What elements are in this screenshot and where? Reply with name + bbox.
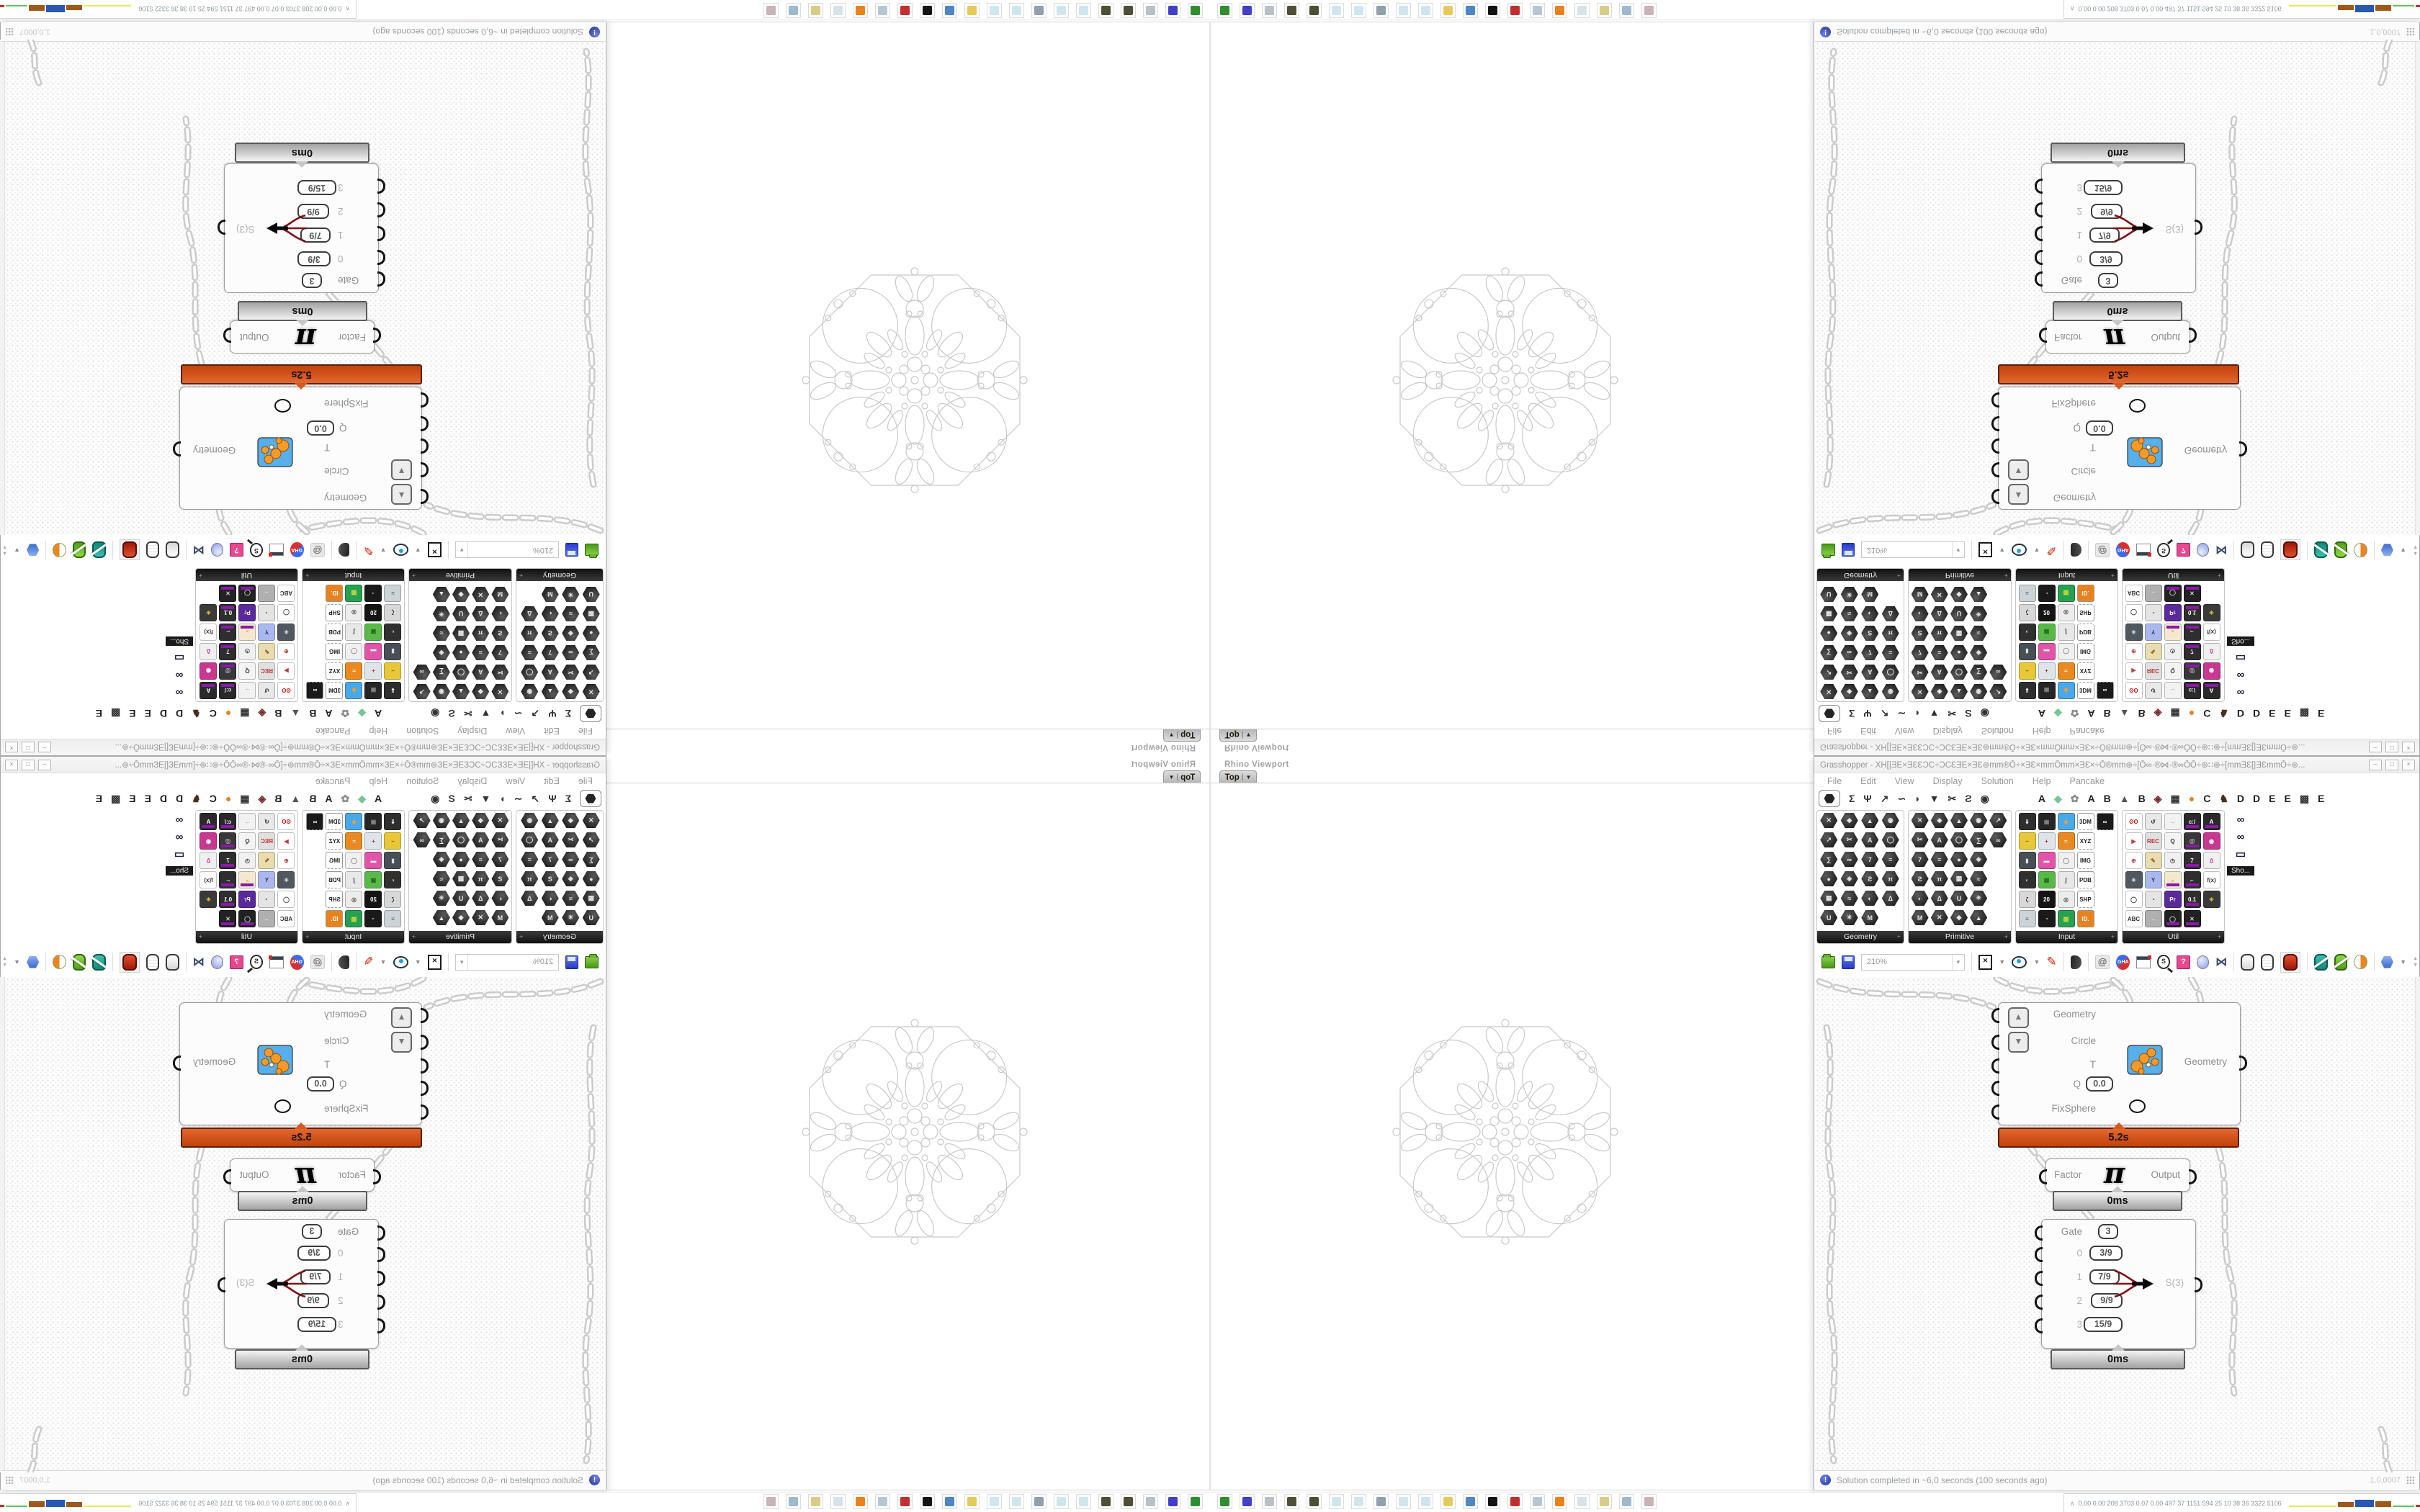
component-icon[interactable]: ◷ xyxy=(239,643,256,660)
component-icon[interactable]: ▶ xyxy=(2125,662,2143,680)
param-hex-icon[interactable]: ✂ xyxy=(1912,665,1929,680)
arrow-down-button[interactable]: ▼ xyxy=(391,459,412,480)
param-hex-icon[interactable]: A xyxy=(1861,832,1878,847)
taskbar-app-button-17[interactable] xyxy=(1597,3,1612,18)
close-button[interactable]: × xyxy=(5,742,18,752)
gate-value-capsule-3[interactable]: 15/9 xyxy=(2084,1317,2123,1332)
component-icon[interactable]: ▮ xyxy=(385,643,402,660)
tab-plugin-6[interactable]: B xyxy=(2138,706,2146,721)
taskbar-app-button-11[interactable] xyxy=(1463,1494,1478,1509)
param-hex-icon[interactable]: ≡ xyxy=(1931,852,1948,867)
component-icon[interactable]: ✕ xyxy=(220,585,237,602)
tab-plugin-1[interactable]: ◆ xyxy=(2054,791,2062,806)
param-hex-icon[interactable]: π xyxy=(1931,626,1948,641)
tab-plugin-8[interactable]: ▦ xyxy=(240,791,249,806)
preview-mode-gray-icon[interactable] xyxy=(166,954,179,971)
component-icon[interactable]: PDB xyxy=(2077,624,2094,641)
tab-plugin-0[interactable]: A xyxy=(375,791,382,806)
param-hex-icon[interactable]: ◆ xyxy=(452,910,470,925)
tab-plugin-2[interactable]: ✿ xyxy=(2071,706,2079,721)
tab-plugin-4[interactable]: B xyxy=(309,706,316,721)
preview-eye-icon[interactable] xyxy=(393,544,408,557)
window-icon[interactable] xyxy=(269,956,283,968)
param-hex-icon[interactable]: 7 xyxy=(1912,852,1929,867)
taskbar-app-button-5[interactable] xyxy=(1329,1494,1344,1509)
param-hex-icon[interactable]: ✕ xyxy=(1931,587,1948,602)
component-icon[interactable]: ∞ xyxy=(2097,682,2114,699)
projector-icon[interactable] xyxy=(2071,544,2082,557)
minimize-button[interactable]: – xyxy=(2369,742,2382,752)
tab-plugin-15[interactable]: E xyxy=(129,706,135,721)
taskbar-app-button-6[interactable] xyxy=(1054,3,1069,18)
taskbar-app-button-6[interactable] xyxy=(1351,1494,1366,1509)
component-icon[interactable]: ≡ xyxy=(2019,585,2036,602)
param-hex-icon[interactable]: ◈ xyxy=(1841,626,1858,641)
taskbar-app-button-15[interactable] xyxy=(853,1494,868,1509)
tab-core-5[interactable]: ▼ xyxy=(1930,706,1940,721)
component-icon[interactable]: ◒ xyxy=(2164,624,2182,641)
param-hex-icon[interactable]: ● xyxy=(452,645,470,660)
menu-item-edit[interactable]: Edit xyxy=(544,726,560,736)
preview-mode-teal-icon[interactable] xyxy=(92,542,106,559)
taskbar-app-button-14[interactable] xyxy=(875,1494,890,1509)
component-icon[interactable]: ◔ xyxy=(2038,585,2056,602)
tab-plugin-0[interactable]: A xyxy=(2038,791,2045,806)
taskbar-app-button-11[interactable] xyxy=(942,1494,957,1509)
component-icon[interactable]: ∫ xyxy=(346,871,363,888)
chevron-down-icon[interactable]: ▼ xyxy=(415,546,421,554)
param-hex-icon[interactable]: Δ xyxy=(1931,606,1948,621)
param-hex-icon[interactable]: ◉ xyxy=(433,813,450,828)
param-hex-icon[interactable]: Δ xyxy=(521,891,538,906)
mini-icon-1[interactable]: ∞ xyxy=(2237,832,2245,843)
component-icon[interactable]: SHP xyxy=(2077,891,2094,908)
tab-plugin-17[interactable]: E xyxy=(2318,706,2324,721)
menu-item-solution[interactable]: Solution xyxy=(406,726,439,736)
tab-plugin-15[interactable]: E xyxy=(129,791,135,806)
tab-plugin-14[interactable]: E xyxy=(145,791,151,806)
component-icon[interactable]: ≡ xyxy=(385,585,402,602)
tab-core-0[interactable]: Σ xyxy=(565,706,571,721)
component-icon[interactable]: → xyxy=(239,682,256,699)
tab-plugin-7[interactable]: ◈ xyxy=(2154,706,2162,721)
tab-core-8[interactable]: ◉ xyxy=(431,791,439,806)
tab-plugin-9[interactable]: ● xyxy=(2189,706,2195,721)
fixsphere-toggle[interactable] xyxy=(2129,399,2146,413)
chevron-down-icon[interactable]: ▼ xyxy=(380,958,387,966)
menu-item-solution[interactable]: Solution xyxy=(1981,776,2014,786)
annotate-icon[interactable]: @ xyxy=(310,955,325,969)
param-hex-icon[interactable]: ∑ xyxy=(1820,852,1837,867)
component-icon[interactable]: f(x) xyxy=(200,871,218,888)
component-icon[interactable]: IMG xyxy=(2077,643,2094,660)
component-icon[interactable]: ▣ xyxy=(365,813,382,830)
taskbar-app-button-17[interactable] xyxy=(1597,1494,1612,1509)
param-hex-icon[interactable]: 7 xyxy=(491,852,508,867)
tab-plugin-9[interactable]: ● xyxy=(2189,791,2195,806)
tab-plugin-10[interactable]: C xyxy=(210,791,217,806)
component-icon[interactable]: PDB xyxy=(326,624,344,641)
component-icon[interactable]: ~ xyxy=(2019,662,2036,680)
param-hex-icon[interactable]: ✕ xyxy=(491,813,508,828)
component-icon[interactable]: @ xyxy=(220,662,237,680)
tab-params-selected[interactable] xyxy=(1819,705,1840,722)
gate-value-capsule-0[interactable]: 3/9 xyxy=(2089,251,2123,266)
component-icon[interactable]: ◯ xyxy=(239,910,256,927)
param-hex-icon[interactable]: ✳ xyxy=(562,587,579,602)
taskbar-app-button-14[interactable] xyxy=(1530,1494,1545,1509)
taskbar-app-button-1[interactable] xyxy=(1165,3,1180,18)
param-hex-icon[interactable]: A xyxy=(1931,832,1948,847)
gate-value-capsule-0[interactable]: 3/9 xyxy=(297,251,331,266)
component-icon[interactable]: → xyxy=(259,910,276,927)
component-icon[interactable]: ID. xyxy=(326,910,344,927)
q-value-capsule[interactable]: 0.0 xyxy=(307,420,334,436)
component-icon[interactable]: Y xyxy=(259,624,276,641)
taskbar-app-button-0[interactable] xyxy=(1217,3,1232,18)
arrow-up-button[interactable]: ▲ xyxy=(391,1007,412,1028)
component-icon[interactable]: ʘʘ xyxy=(2125,682,2143,699)
gate-value-capsule-0[interactable]: 3/9 xyxy=(297,1246,331,1261)
zoom-combo[interactable]: 210%▼ xyxy=(1861,954,1965,971)
param-hex-icon[interactable]: ≈ xyxy=(433,871,450,886)
param-hex-icon[interactable]: ◆ xyxy=(1841,684,1858,699)
component-icon[interactable]: XYZ xyxy=(326,832,344,850)
component-icon[interactable]: 7 xyxy=(2184,643,2201,660)
arrow-down-button[interactable]: ▼ xyxy=(391,1032,412,1053)
component-icon[interactable]: ◔ xyxy=(2038,910,2056,927)
param-hex-icon[interactable]: ✂ xyxy=(1841,832,1858,847)
param-hex-icon[interactable]: ◐ xyxy=(1861,606,1878,621)
arrow-down-button[interactable]: ▼ xyxy=(2008,459,2029,480)
tab-plugin-5[interactable]: ▲ xyxy=(290,706,300,721)
help-box-icon[interactable]: ? xyxy=(2177,544,2190,557)
param-hex-icon[interactable]: Ƨ xyxy=(1861,626,1878,641)
param-hex-icon[interactable]: ✳ xyxy=(1841,587,1858,602)
component-icon[interactable]: + xyxy=(2038,662,2056,680)
tab-core-6[interactable]: ✂ xyxy=(1948,706,1957,721)
tab-core-7[interactable]: Ƨ xyxy=(1965,791,1971,806)
component-icon[interactable]: Pr xyxy=(239,604,256,621)
taskbar-app-button-2[interactable] xyxy=(1262,1494,1277,1509)
component-icon[interactable]: ◉ xyxy=(2203,832,2220,850)
component-icon[interactable]: ◔ xyxy=(365,585,382,602)
param-hex-icon[interactable]: ✂ xyxy=(1841,665,1858,680)
tab-plugin-7[interactable]: ◈ xyxy=(259,791,266,806)
shaded-sphere-icon[interactable] xyxy=(2354,543,2367,557)
param-hex-icon[interactable]: ▲ xyxy=(433,910,450,925)
taskbar-app-button-6[interactable] xyxy=(1054,1494,1069,1509)
tab-core-3[interactable]: ∽ xyxy=(514,706,523,721)
param-hex-icon[interactable]: ◉ xyxy=(1970,684,1987,699)
param-hex-icon[interactable]: A xyxy=(472,832,489,847)
tab-plugin-6[interactable]: B xyxy=(274,706,282,721)
component-icon[interactable]: ✎ xyxy=(259,643,276,660)
param-hex-icon[interactable]: ✕ xyxy=(491,684,508,699)
tab-plugin-4[interactable]: B xyxy=(309,791,316,806)
tab-plugin-16[interactable]: ▩ xyxy=(111,706,120,721)
component-icon[interactable]: ◐ xyxy=(2019,871,2036,888)
tab-params-selected[interactable] xyxy=(580,790,601,807)
param-hex-icon[interactable]: A xyxy=(472,665,489,680)
chevron-down-icon[interactable]: ▼ xyxy=(14,546,20,554)
component-icon[interactable]: ✎ xyxy=(259,852,276,869)
component-icon[interactable]: ✳ xyxy=(200,891,218,908)
taskbar-app-button-0[interactable] xyxy=(1188,3,1203,18)
tab-plugin-15[interactable]: E xyxy=(2284,791,2290,806)
param-hex-icon[interactable]: ✕ xyxy=(1820,813,1837,828)
grasshopper-canvas[interactable]: ▲ ▼ Geometry Circle T Q FixSphere 0.0 xyxy=(0,40,605,535)
component-icon[interactable]: ◒ xyxy=(239,624,256,641)
projector-icon[interactable] xyxy=(339,544,350,557)
component-icon[interactable]: REC xyxy=(259,832,276,850)
taskbar-app-button-19[interactable] xyxy=(763,1494,779,1509)
mini-icon-1[interactable]: ∞ xyxy=(176,832,184,843)
taskbar-app-button-7[interactable] xyxy=(1373,3,1389,18)
mini-icon-0[interactable]: ∞ xyxy=(2237,814,2245,826)
taskbar-app-button-11[interactable] xyxy=(1463,3,1478,18)
param-hex-icon[interactable]: π xyxy=(472,871,489,886)
tab-plugin-14[interactable]: E xyxy=(2269,706,2275,721)
lightbulb-icon[interactable] xyxy=(211,544,224,557)
resize-grip[interactable] xyxy=(6,1476,14,1484)
param-hex-icon[interactable]: ▲ xyxy=(1861,684,1878,699)
gate-value-capsule[interactable]: 3 xyxy=(302,1224,322,1239)
preview-mode-teal-icon[interactable] xyxy=(2314,954,2328,971)
taskbar-app-button-13[interactable] xyxy=(1507,1494,1523,1509)
menu-item-help[interactable]: Help xyxy=(369,726,388,736)
taskbar-app-button-4[interactable] xyxy=(1098,1494,1113,1509)
gate-value-capsule-3[interactable]: 15/9 xyxy=(297,180,336,195)
lightbulb-icon[interactable] xyxy=(2197,544,2210,557)
mini-icon-0[interactable]: ∞ xyxy=(2237,686,2245,698)
param-hex-icon[interactable]: ◉ xyxy=(433,684,450,699)
taskbar-app-button-4[interactable] xyxy=(1098,3,1113,18)
component-icon[interactable]: REC xyxy=(259,662,276,680)
component-icon[interactable]: PDB xyxy=(326,871,344,888)
param-hex-icon[interactable]: ◆ xyxy=(1950,587,1968,602)
param-hex-icon[interactable]: 7 xyxy=(542,852,559,867)
q-value-capsule[interactable]: 0.0 xyxy=(307,1076,334,1092)
tab-core-1[interactable]: Ψ xyxy=(1863,706,1871,721)
projector-icon[interactable] xyxy=(2071,955,2082,969)
search-icon[interactable]: S xyxy=(250,955,264,969)
projector-icon[interactable] xyxy=(339,955,350,969)
tab-plugin-2[interactable]: ✿ xyxy=(2071,791,2079,806)
annotate-icon[interactable]: @ xyxy=(2095,955,2110,969)
param-hex-icon[interactable]: ∑ xyxy=(433,665,450,680)
tab-plugin-12[interactable]: D xyxy=(2237,706,2244,721)
param-hex-icon[interactable]: M xyxy=(542,587,559,602)
tab-plugin-12[interactable]: D xyxy=(176,706,183,721)
param-hex-icon[interactable]: Ƨ xyxy=(1912,626,1929,641)
menu-item-file[interactable]: File xyxy=(578,776,593,786)
param-hex-icon[interactable]: ↗ xyxy=(1989,684,2007,699)
component-icon[interactable]: ✳ xyxy=(278,624,295,641)
component-icon[interactable]: ↺ xyxy=(2145,813,2162,830)
taskbar-app-button-16[interactable] xyxy=(1574,3,1590,18)
maximize-button[interactable]: □ xyxy=(2385,760,2398,770)
taskbar-app-button-2[interactable] xyxy=(1143,1494,1158,1509)
component-icon[interactable]: f(x) xyxy=(2203,624,2220,641)
component-icon[interactable]: ◐ xyxy=(385,624,402,641)
tab-core-4[interactable]: ◗ xyxy=(499,791,505,806)
param-hex-icon[interactable]: M xyxy=(1912,587,1929,602)
param-hex-icon[interactable]: ▦ xyxy=(583,891,600,906)
component-icon[interactable]: Pr xyxy=(2164,891,2182,908)
tab-plugin-15[interactable]: E xyxy=(2284,706,2290,721)
component-icon[interactable]: ʘʘ xyxy=(278,682,295,699)
open-file-icon[interactable] xyxy=(585,956,599,968)
param-hex-icon[interactable]: ∑ xyxy=(583,852,600,867)
mini-icon-0[interactable]: ∞ xyxy=(176,686,184,698)
menu-item-edit[interactable]: Edit xyxy=(1860,776,1876,786)
component-icon[interactable]: ⇓ xyxy=(2019,682,2036,699)
taskbar-app-button-7[interactable] xyxy=(1031,1494,1047,1509)
component-icon[interactable]: XYZ xyxy=(326,662,344,680)
param-hex-icon[interactable]: ● xyxy=(452,852,470,867)
taskbar-app-button-3[interactable] xyxy=(1284,1494,1299,1509)
tab-plugin-10[interactable]: C xyxy=(2203,791,2210,806)
param-hex-icon[interactable]: ◈ xyxy=(1841,871,1858,886)
param-hex-icon[interactable]: 7 xyxy=(1912,645,1929,660)
component-icon[interactable]: SHP xyxy=(326,604,344,621)
tab-params-selected[interactable] xyxy=(580,705,601,722)
param-hex-icon[interactable]: ▲ xyxy=(542,813,559,828)
param-hex-icon[interactable]: ◈ xyxy=(1970,852,1987,867)
menu-item-file[interactable]: File xyxy=(1827,726,1842,736)
search-icon[interactable]: S xyxy=(2157,955,2171,969)
param-hex-icon[interactable]: A xyxy=(542,665,559,680)
shaded-sphere-icon[interactable] xyxy=(2354,955,2367,969)
component-icon[interactable]: ⌐ xyxy=(2184,624,2201,641)
taskbar-app-button-0[interactable] xyxy=(1188,1494,1203,1509)
component-icon[interactable]: ≈ xyxy=(346,662,363,680)
taskbar-app-button-4[interactable] xyxy=(1307,3,1322,18)
param-hex-icon[interactable]: ∞ xyxy=(1989,665,2007,680)
menu-item-help[interactable]: Help xyxy=(2033,726,2051,736)
taskbar-app-button-13[interactable] xyxy=(897,3,913,18)
tab-core-7[interactable]: Ƨ xyxy=(448,706,454,721)
fixsphere-toggle[interactable] xyxy=(274,399,291,413)
q-value-capsule[interactable]: 0.0 xyxy=(2086,1076,2113,1092)
component-icon[interactable]: PDB xyxy=(2077,871,2094,888)
menu-item-help[interactable]: Help xyxy=(2033,776,2051,786)
toolbar-scroll-arrows[interactable]: ▲▼ xyxy=(2,956,7,968)
tab-plugin-16[interactable]: ▩ xyxy=(111,791,120,806)
param-hex-icon[interactable]: ▲ xyxy=(1861,813,1878,828)
tab-plugin-5[interactable]: ▲ xyxy=(2120,706,2130,721)
taskbar-app-button-3[interactable] xyxy=(1284,3,1299,18)
minimize-button[interactable]: – xyxy=(2369,760,2382,770)
fixsphere-toggle[interactable] xyxy=(2129,1099,2146,1113)
grasshopper-canvas[interactable]: ▲ ▼ Geometry Circle T Q FixSphere 0.0 xyxy=(0,977,605,1472)
open-file-icon[interactable] xyxy=(1821,544,1835,557)
menu-item-pancake[interactable]: Pancake xyxy=(315,726,351,736)
component-icon[interactable]: ʘʘ xyxy=(278,813,295,830)
param-hex-icon[interactable]: ✳ xyxy=(433,891,450,906)
gha-assembly-icon[interactable]: GHA xyxy=(290,955,304,970)
param-hex-icon[interactable]: ● xyxy=(1950,852,1968,867)
param-hex-icon[interactable]: ✂ xyxy=(1912,832,1929,847)
zoom-extents-icon[interactable]: ✕ xyxy=(1978,955,1993,970)
component-icon[interactable]: ◯ xyxy=(346,643,363,660)
tab-plugin-10[interactable]: C xyxy=(2203,706,2210,721)
help-box-icon[interactable]: ? xyxy=(2177,955,2190,969)
zoom-extents-icon[interactable]: ✕ xyxy=(428,955,442,970)
component-icon[interactable]: ≡ xyxy=(385,910,402,927)
component-icon[interactable]: ◒ xyxy=(239,871,256,888)
gha-assembly-icon[interactable]: GHA xyxy=(2116,955,2130,970)
preview-eye-icon[interactable] xyxy=(393,956,408,968)
tab-plugin-0[interactable]: A xyxy=(2038,706,2045,721)
param-hex-icon[interactable]: ◆ xyxy=(452,587,470,602)
component-icon[interactable]: ✕ xyxy=(220,910,237,927)
param-hex-icon[interactable]: ✕ xyxy=(1912,813,1929,828)
component-icon[interactable]: ✳ xyxy=(2203,604,2220,621)
param-hex-icon[interactable]: ▦ xyxy=(1950,871,1968,886)
component-icon[interactable]: Q xyxy=(239,832,256,850)
preview-mode-green-icon[interactable] xyxy=(73,542,86,559)
gate-value-capsule[interactable]: 3 xyxy=(2098,273,2118,288)
component-icon[interactable]: c:/ xyxy=(220,813,237,830)
preview-mode-gray-icon[interactable] xyxy=(166,542,179,559)
component-icon[interactable]: ⌐ xyxy=(2184,871,2201,888)
param-hex-icon[interactable]: ◐ xyxy=(1912,606,1929,621)
param-hex-icon[interactable]: ● xyxy=(1820,626,1837,641)
component-icon[interactable]: ◯ xyxy=(239,585,256,602)
tab-core-3[interactable]: ∽ xyxy=(1897,706,1906,721)
search-icon[interactable]: S xyxy=(2157,543,2171,557)
menu-item-edit[interactable]: Edit xyxy=(544,776,560,786)
component-icon[interactable]: ▦ xyxy=(365,871,382,888)
param-hex-icon[interactable]: ≡ xyxy=(1931,645,1948,660)
open-file-icon[interactable] xyxy=(585,544,599,557)
gate-value-capsule-0[interactable]: 3/9 xyxy=(2089,1246,2123,1261)
chevron-down-icon[interactable]: ▼ xyxy=(2033,546,2040,554)
close-button[interactable]: × xyxy=(5,760,18,770)
taskbar-app-button-14[interactable] xyxy=(875,3,890,18)
taskbar-app-button-14[interactable] xyxy=(1530,3,1545,18)
tab-core-0[interactable]: Σ xyxy=(1849,706,1855,721)
tab-plugin-3[interactable]: A xyxy=(325,791,332,806)
taskbar-app-button-17[interactable] xyxy=(808,1494,823,1509)
param-hex-icon[interactable]: ◆ xyxy=(472,813,489,828)
component-icon[interactable]: ◆ xyxy=(2058,813,2075,830)
component-icon[interactable]: ▮ xyxy=(2019,852,2036,869)
param-hex-icon[interactable]: ◉ xyxy=(1882,684,1899,699)
component-icon[interactable]: Q xyxy=(2164,662,2182,680)
arrow-up-button[interactable]: ▲ xyxy=(2008,484,2029,505)
param-hex-icon[interactable]: M xyxy=(1861,910,1878,925)
component-icon[interactable]: ζ xyxy=(385,891,402,908)
open-file-icon[interactable] xyxy=(1821,956,1835,968)
tab-plugin-12[interactable]: D xyxy=(176,791,183,806)
taskbar-app-button-7[interactable] xyxy=(1373,1494,1389,1509)
resize-grip[interactable] xyxy=(6,28,14,36)
minimize-button[interactable]: – xyxy=(38,742,51,752)
param-hex-icon[interactable]: π xyxy=(472,626,489,641)
param-hex-icon[interactable]: U xyxy=(452,891,470,906)
component-icon[interactable]: ∫ xyxy=(346,624,363,641)
component-icon[interactable]: 0.1 xyxy=(220,604,237,621)
param-hex-icon[interactable]: ≡ xyxy=(1882,852,1899,867)
taskbar-app-button-5[interactable] xyxy=(1329,3,1344,18)
component-icon[interactable]: c:/ xyxy=(2184,813,2201,830)
component-icon[interactable]: Q xyxy=(239,662,256,680)
component-icon[interactable]: SHP xyxy=(2077,604,2094,621)
tab-core-1[interactable]: Ψ xyxy=(1863,791,1871,806)
